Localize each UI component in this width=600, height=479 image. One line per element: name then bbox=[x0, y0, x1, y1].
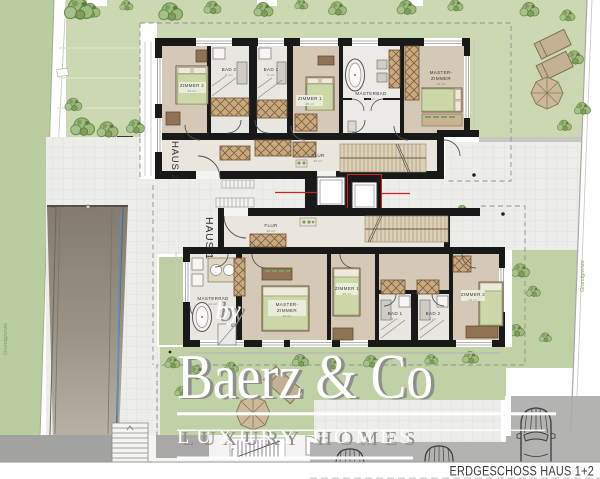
svg-text:ZIMMER 1: ZIMMER 1 bbox=[335, 286, 359, 291]
svg-text:FLUR: FLUR bbox=[311, 153, 325, 158]
svg-text:10 m²: 10 m² bbox=[266, 229, 275, 233]
svg-text:5 m²: 5 m² bbox=[267, 73, 274, 77]
svg-text:ERDGESCHOSS HAUS 1+2: ERDGESCHOSS HAUS 1+2 bbox=[450, 463, 594, 479]
svg-text:ZIMMER 1: ZIMMER 1 bbox=[298, 96, 322, 101]
svg-text:LUXURY HOMES: LUXURY HOMES bbox=[177, 426, 418, 448]
svg-text:ZIMMER 2: ZIMMER 2 bbox=[461, 292, 485, 297]
svg-text:15 m²: 15 m² bbox=[342, 292, 351, 296]
svg-text:BAD 2: BAD 2 bbox=[222, 67, 237, 72]
svg-text:14 m²: 14 m² bbox=[468, 298, 477, 302]
svg-text:by: by bbox=[215, 295, 241, 325]
svg-text:MASTER-: MASTER- bbox=[276, 302, 299, 307]
svg-text:ZIMMER: ZIMMER bbox=[431, 76, 451, 81]
svg-text:BAD 2: BAD 2 bbox=[426, 311, 441, 316]
svg-text:10 m²: 10 m² bbox=[313, 159, 322, 163]
svg-text:FLUR: FLUR bbox=[264, 223, 278, 228]
svg-text:5 m²: 5 m² bbox=[225, 73, 232, 77]
svg-text:ZIMMER 2: ZIMMER 2 bbox=[180, 83, 204, 88]
svg-text:Baerz & Co: Baerz & Co bbox=[177, 342, 433, 412]
svg-text:16 m²: 16 m² bbox=[282, 314, 291, 318]
svg-text:15 m²: 15 m² bbox=[305, 102, 314, 106]
svg-text:5 m²: 5 m² bbox=[429, 317, 436, 321]
svg-text:14 m²: 14 m² bbox=[187, 89, 196, 93]
svg-text:BAD 1: BAD 1 bbox=[264, 67, 279, 72]
svg-text:Grundgrenze: Grundgrenze bbox=[3, 323, 9, 355]
svg-text:BAD 1: BAD 1 bbox=[388, 311, 403, 316]
svg-text:MASTER-: MASTER- bbox=[430, 70, 453, 75]
svg-text:5 m²: 5 m² bbox=[391, 317, 398, 321]
svg-text:ZIMMER: ZIMMER bbox=[277, 308, 297, 313]
svg-text:HAUS 2: HAUS 2 bbox=[169, 141, 180, 180]
svg-text:12 m²: 12 m² bbox=[366, 97, 375, 101]
svg-text:HAUS 1: HAUS 1 bbox=[203, 217, 215, 260]
svg-text:MASTERBAD: MASTERBAD bbox=[355, 91, 387, 96]
svg-text:16 m²: 16 m² bbox=[436, 82, 445, 86]
svg-text:Grundgrenze: Grundgrenze bbox=[580, 260, 586, 292]
